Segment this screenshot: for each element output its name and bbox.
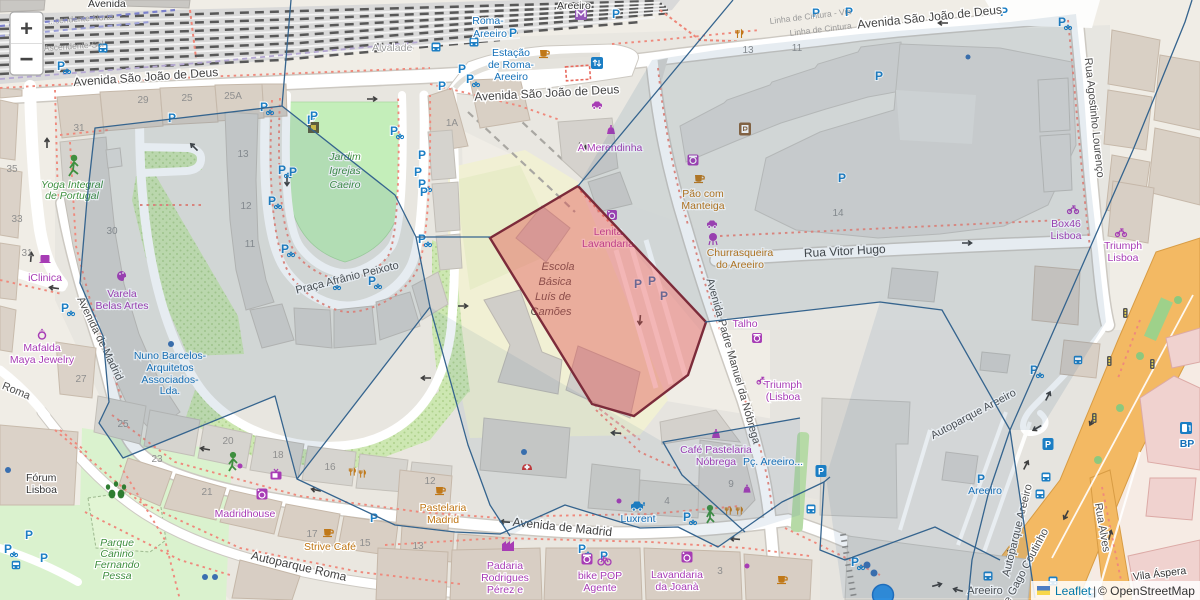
svg-text:Pérez e: Pérez e [487,584,523,596]
svg-text:Leaflet: Leaflet [1055,584,1092,598]
svg-text:Rodrigues: Rodrigues [481,572,529,584]
svg-text:Triumph: Triumph [764,379,802,391]
svg-text:|: | [1093,584,1096,598]
svg-text:(Lisboa: (Lisboa [766,391,801,403]
svg-text:25A: 25A [224,91,242,102]
svg-text:13: 13 [412,541,424,552]
svg-text:Maya Jewelry: Maya Jewelry [10,354,75,366]
svg-text:Areeiro: Areeiro [494,71,528,83]
svg-text:da Joanà: da Joanà [655,581,698,593]
svg-text:P: P [310,109,318,123]
svg-text:21: 21 [201,487,213,498]
svg-text:P: P [438,79,446,93]
svg-text:33: 33 [11,214,23,225]
svg-text:Alvalade: Alvalade [372,42,412,54]
svg-text:Fórum: Fórum [26,472,57,484]
svg-text:© OpenStreetMap: © OpenStreetMap [1098,584,1195,598]
svg-text:Triumph: Triumph [1104,240,1142,252]
svg-text:Roma-: Roma- [472,15,504,27]
svg-text:P: P [414,165,422,179]
svg-text:−: − [19,46,33,73]
svg-text:Estação: Estação [492,47,530,59]
svg-text:Mafalda: Mafalda [23,342,61,354]
svg-text:16: 16 [324,462,336,473]
svg-text:15: 15 [359,538,371,549]
svg-text:Areeiro: Areeiro [473,28,507,40]
svg-text:25: 25 [181,93,193,104]
svg-text:P: P [612,7,620,21]
svg-text:P: P [509,26,517,40]
svg-text:23: 23 [151,454,163,465]
svg-text:P: P [1045,440,1051,450]
svg-text:Lisboa: Lisboa [1108,252,1139,264]
svg-text:BP: BP [1180,438,1195,450]
svg-text:27: 27 [75,374,87,385]
svg-text:de Roma-: de Roma- [488,59,535,71]
svg-text:1A: 1A [446,118,459,129]
svg-text:31: 31 [73,123,85,134]
svg-text:18: 18 [272,450,284,461]
svg-text:P: P [418,148,426,162]
svg-text:P: P [25,528,33,542]
svg-text:Agente: Agente [583,582,616,594]
svg-text:P: P [370,511,378,525]
svg-text:31: 31 [21,248,33,259]
svg-text:Areeiro: Areeiro [557,0,591,12]
svg-text:P: P [818,467,824,477]
svg-text:35: 35 [6,164,18,175]
svg-text:+: + [20,16,33,41]
svg-text:P: P [420,185,428,199]
svg-text:iClinica: iClinica [28,272,62,284]
svg-text:3: 3 [717,566,723,577]
svg-text:Pessa: Pessa [102,570,131,582]
svg-text:20: 20 [222,436,234,447]
svg-text:P: P [458,62,466,76]
svg-text:Talho: Talho [732,318,757,330]
svg-text:P: P [40,551,48,565]
svg-text:Lavandaria: Lavandaria [651,569,703,581]
svg-text:12: 12 [424,476,436,487]
svg-text:Pastelaria: Pastelaria [420,502,467,514]
svg-text:17: 17 [306,529,318,540]
svg-text:bike POP: bike POP [578,570,622,582]
svg-text:29: 29 [137,95,149,106]
svg-text:Padaria: Padaria [487,560,523,572]
svg-text:Avenida: Avenida [88,0,126,10]
svg-text:Lisboa: Lisboa [26,484,57,496]
svg-text:Strive Café: Strive Café [304,541,356,553]
svg-text:Madrid: Madrid [427,514,459,526]
svg-text:Madridhouse: Madridhouse [215,508,276,520]
